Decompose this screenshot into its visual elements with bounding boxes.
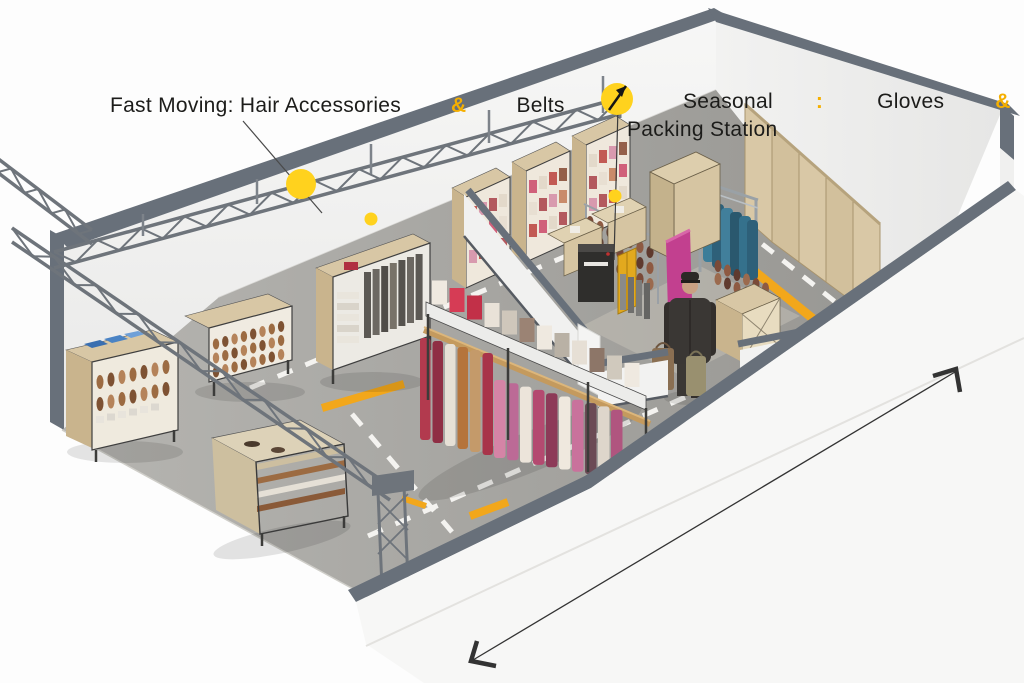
packing-machine (578, 244, 614, 302)
label-fast-moving: Fast Moving: Hair Accessories (110, 94, 401, 117)
marker-dot-icon (286, 169, 316, 199)
annotation-packing-station-text: Packing Station (627, 118, 777, 141)
annotation-fast-moving: Fast Moving: Hair Accessories & Belts (67, 94, 595, 117)
shelf-unit-back-2 (512, 142, 570, 262)
marker-dot-small-icon (365, 213, 378, 226)
accent-ampersand: & (995, 90, 1010, 113)
marker-dot-small-icon (609, 190, 622, 203)
annotation-fast-moving-text: Fast Moving: Hair Accessories & Belts (67, 94, 595, 117)
accent-ampersand: & (451, 94, 466, 117)
warehouse-diagram: Fast Moving: Hair Accessories & Belts Se… (0, 0, 1024, 683)
annotation-seasonal-text: Seasonal : Gloves & Scarves (640, 90, 1024, 113)
accent-colon: : (816, 90, 823, 113)
worker-cap (681, 272, 699, 281)
